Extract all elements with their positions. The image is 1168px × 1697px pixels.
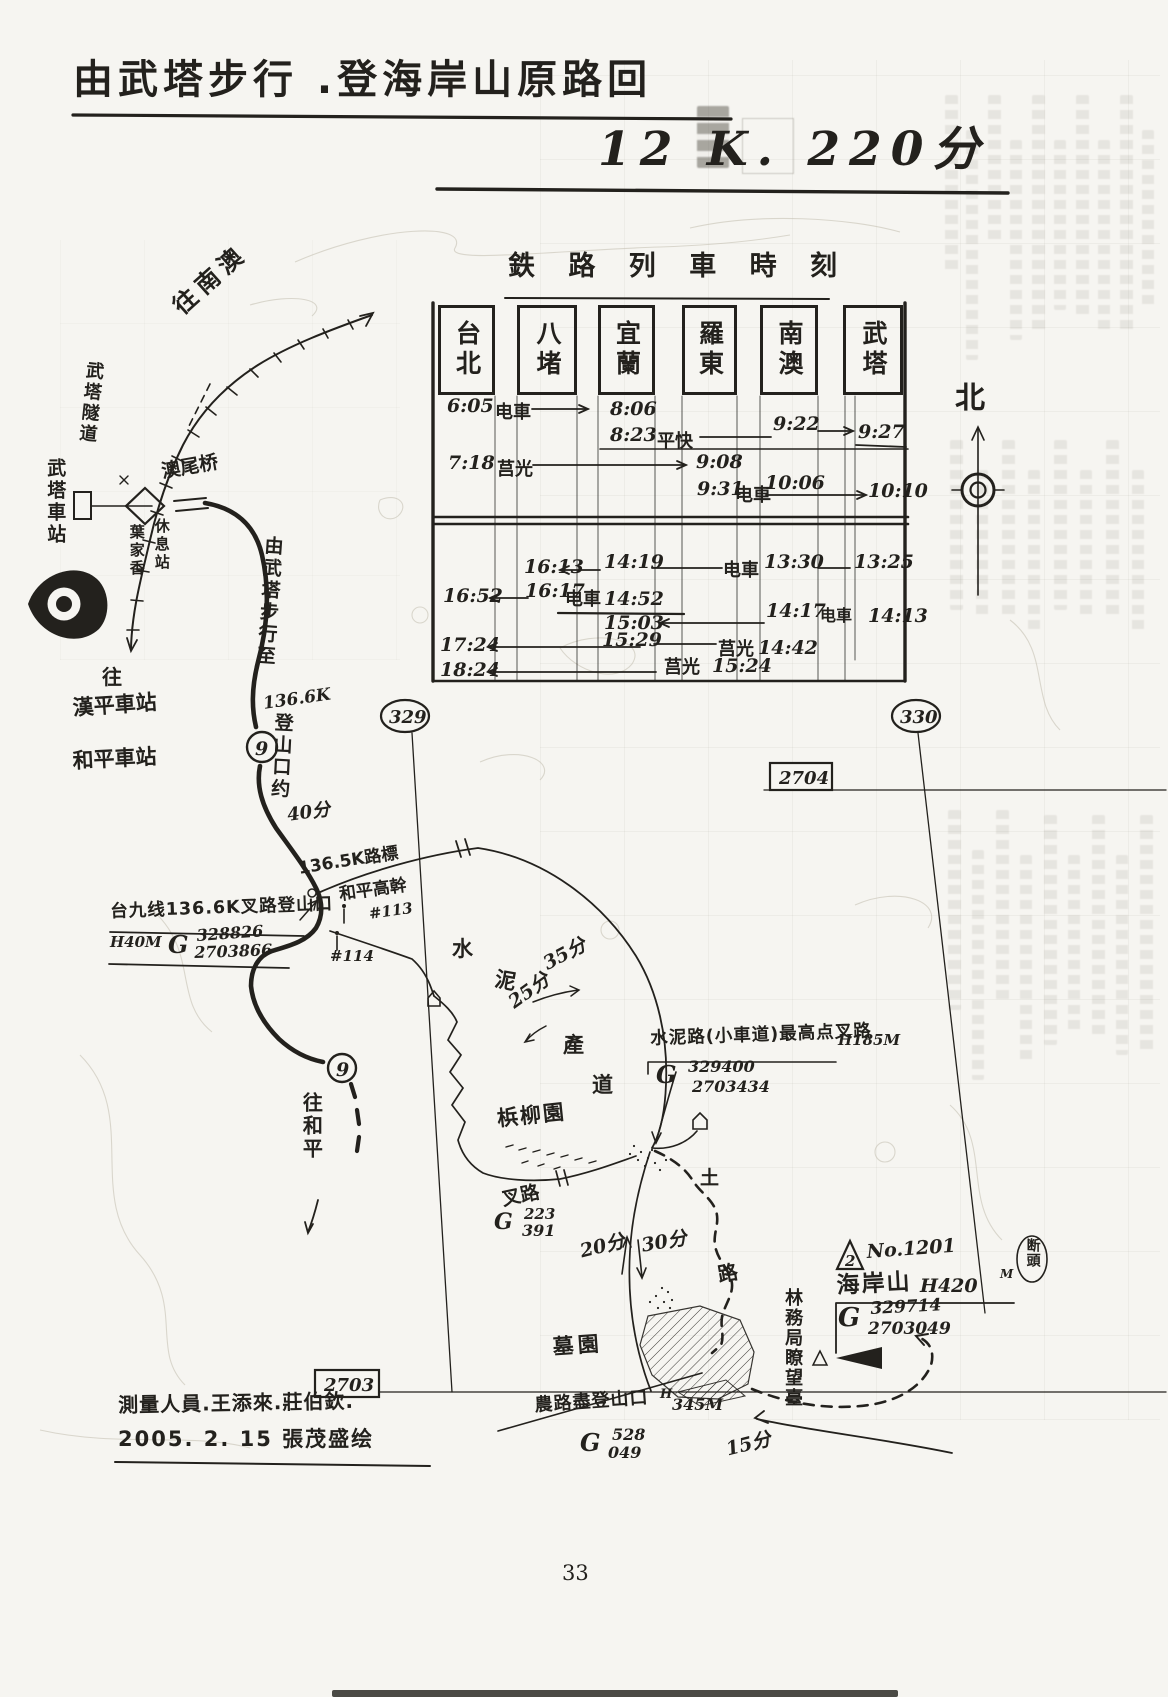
label-trailhead-136-n: 2703866 xyxy=(194,941,273,962)
railway-line xyxy=(92,313,373,651)
label-highpoint-elev: H185M xyxy=(838,1032,900,1049)
north-compass-icon xyxy=(952,427,1004,595)
train-type: 电車 xyxy=(723,556,759,582)
time-cell: 16:13 xyxy=(524,556,584,578)
station-box-badu: 八堵 xyxy=(517,305,577,395)
orchard-marks xyxy=(506,1145,596,1169)
label-highpoint-e: 329400 xyxy=(688,1058,755,1076)
page-number: 33 xyxy=(562,1562,589,1586)
train-type: 平快 xyxy=(657,427,693,453)
label-road-char: 水 xyxy=(452,938,473,962)
crossing-mark xyxy=(120,476,128,484)
time-cell: 7:18 xyxy=(448,452,495,474)
time-cell: 9:08 xyxy=(696,451,743,473)
label-dirt-char: 路 xyxy=(716,1261,740,1287)
time-cell: 10:10 xyxy=(868,480,928,502)
stipple-dots xyxy=(629,1145,673,1309)
summit-triangle-number: 2 xyxy=(844,1252,855,1270)
highway-9-number: 9 xyxy=(336,1059,349,1081)
label-summit-e: 329714 xyxy=(870,1296,942,1319)
label-summit-g: G xyxy=(838,1304,860,1333)
time-cell: 15:29 xyxy=(602,629,662,651)
fifteen-min-arrow xyxy=(755,1411,952,1453)
time-cell: 14:52 xyxy=(604,588,664,610)
label-summit-n: 2703049 xyxy=(868,1320,951,1339)
small-triangle-icon xyxy=(813,1351,827,1365)
label-to-heping: 往和平 xyxy=(300,1092,322,1161)
station-box-yilan: 宜蘭 xyxy=(598,305,655,395)
scanned-map-page: 9 9 329 330 2704 2703 2 由武塔步行 .登海岸山原路回 1… xyxy=(0,0,1168,1697)
label-toward: 往 xyxy=(102,666,122,688)
label-pole-114: #114 xyxy=(330,948,374,965)
label-rest-stop-name: 葉家香 xyxy=(128,524,145,578)
label-highpoint-g: G xyxy=(656,1062,677,1089)
station-box-taipei: 台北 xyxy=(438,305,495,395)
label-fork-g: G xyxy=(494,1210,513,1235)
subtitle-underline xyxy=(437,189,1008,193)
club-logo-icon xyxy=(28,570,107,638)
scan-edge-artifact xyxy=(332,1690,898,1697)
train-type: 电車 xyxy=(820,602,852,626)
label-summit-badge: 断頭 xyxy=(1024,1238,1040,1268)
label-road-char: 產 xyxy=(563,1034,584,1058)
label-cemetery: 墓園 xyxy=(552,1333,604,1360)
timetable-title-underline xyxy=(505,298,829,299)
label-fork-n: 391 xyxy=(522,1222,555,1240)
train-type: 莒光 xyxy=(664,653,700,679)
label-rest-stop: 休息站 xyxy=(153,518,170,572)
time-cell: 14:19 xyxy=(604,551,664,573)
time-cell: 8:23 xyxy=(610,424,657,446)
station-box-nanao: 南澳 xyxy=(760,305,818,395)
label-lookout: 林務局瞭望臺 xyxy=(782,1288,802,1408)
train-type: 电車 xyxy=(565,585,601,611)
label-farm-trailhead-g: G xyxy=(580,1430,601,1457)
train-type: 电車 xyxy=(495,398,531,424)
time-cell: 13:25 xyxy=(854,551,914,573)
hut-symbol xyxy=(693,1113,707,1129)
time-cell: 9:27 xyxy=(858,421,905,443)
time-cell: 14:17 xyxy=(766,600,826,622)
label-summit-elev: H420 xyxy=(920,1276,978,1297)
highway-9-number: 9 xyxy=(255,738,268,760)
zigzag-trail xyxy=(330,931,636,1186)
label-trailhead-136-g: G xyxy=(168,932,189,959)
label-trailhead-136-elev: H40M xyxy=(110,934,162,951)
label-farm-trailhead-e: 528 xyxy=(612,1426,645,1444)
grid-329-label: 329 xyxy=(389,707,427,728)
label-dirt-char: 土 xyxy=(700,1168,719,1189)
lookout-triangle-icon xyxy=(836,1347,882,1369)
title-underline xyxy=(73,115,731,119)
time-cell: 15:24 xyxy=(712,655,772,677)
time-cell: 14:13 xyxy=(868,605,928,627)
time-cell: 6:05 xyxy=(447,395,494,417)
label-walk-note-2: 登山口约 xyxy=(267,712,293,801)
footer-underline xyxy=(115,1462,430,1466)
label-summit-name: 海岸山 xyxy=(836,1270,912,1300)
train-type: 莒光 xyxy=(497,455,533,481)
label-farm-trailhead-elev: 345M xyxy=(672,1396,723,1414)
label-heping-station: 和平車站 xyxy=(72,746,157,774)
label-farm-trailhead-h: H xyxy=(660,1388,672,1403)
time-cell: 10:06 xyxy=(765,472,825,494)
bridge-symbol xyxy=(174,498,208,511)
time-cell: 18:24 xyxy=(440,659,500,681)
time-cell: 13:30 xyxy=(764,551,824,573)
north-label: 北 xyxy=(955,382,985,416)
time-cell: 16:52 xyxy=(443,585,503,607)
label-wuta-station: 武塔車站 xyxy=(44,458,65,546)
time-cell: 8:06 xyxy=(610,398,657,420)
station-symbol xyxy=(74,492,91,519)
label-road-char: 道 xyxy=(592,1074,613,1098)
time-cell: 17:24 xyxy=(440,634,500,656)
time-cell: 9:22 xyxy=(773,413,820,435)
subtitle-value: 12 K. 220分 xyxy=(598,124,988,177)
label-summit-elev-unit: M xyxy=(1000,1268,1013,1281)
drawn-by-note: 2005. 2. 15 張茂盛绘 xyxy=(118,1428,374,1452)
grid-2704-label: 2704 xyxy=(778,768,829,789)
station-box-wuta: 武塔 xyxy=(843,305,903,395)
page-title: 由武塔步行 .登海岸山原路回 xyxy=(73,58,652,103)
surveyors-note: 測量人員.王添來.莊伯欽. xyxy=(118,1390,354,1417)
pencil-contours xyxy=(40,218,1060,1448)
timetable-title: 鉄 路 列 車 時 刻 xyxy=(508,252,849,282)
label-highpoint-n: 2703434 xyxy=(692,1078,770,1096)
grid-330-label: 330 xyxy=(900,707,938,728)
label-farm-trailhead-n: 049 xyxy=(608,1444,641,1462)
station-box-luodong: 羅東 xyxy=(682,305,737,395)
